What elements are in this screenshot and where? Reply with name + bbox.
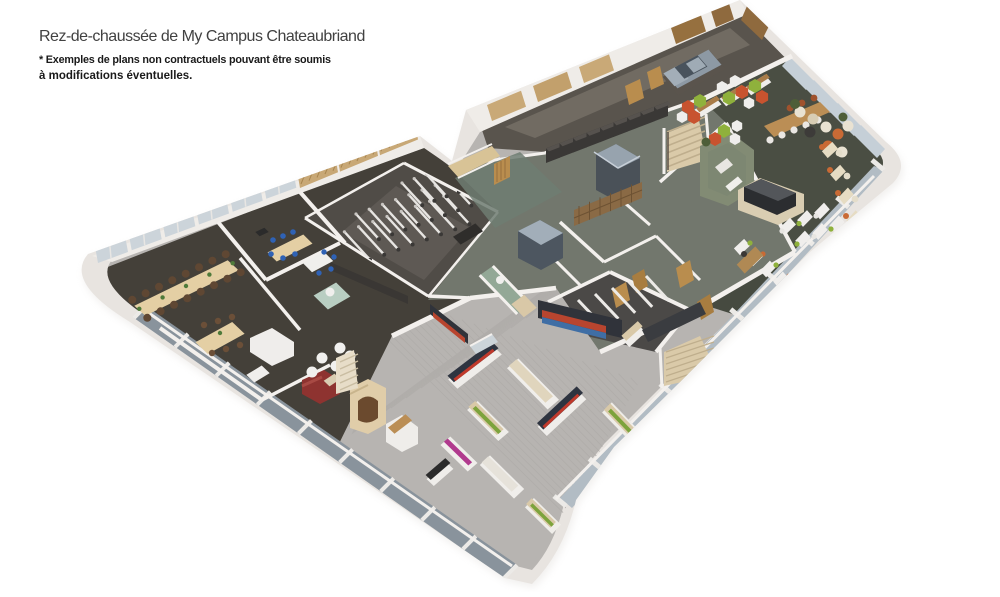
svg-text:* Exemples de plans non contra: * Exemples de plans non contractuels pou… bbox=[39, 54, 331, 66]
svg-text:à modifications éventuelles.: à modifications éventuelles. bbox=[39, 70, 192, 82]
svg-text:Rez-de-chaussée de My Campus C: Rez-de-chaussée de My Campus Chateaubria… bbox=[39, 28, 365, 45]
